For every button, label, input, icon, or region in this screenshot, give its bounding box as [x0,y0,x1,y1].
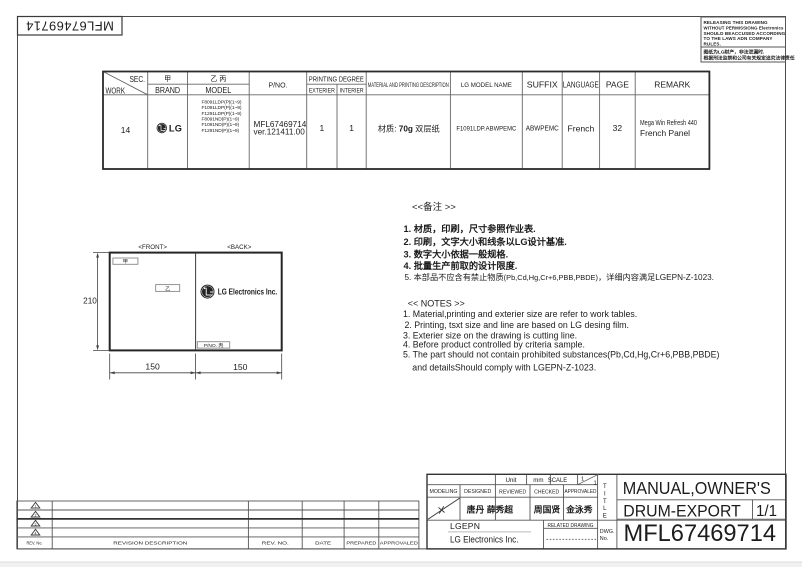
svg-text:3. 数字大小依据一般规格.: 3. 数字大小依据一般规格. [404,249,509,260]
svg-text:P/NO. 丙: P/NO. 丙 [204,343,224,349]
svg-text:REV. NO.: REV. NO. [262,541,289,546]
svg-text:LG: LG [169,123,182,133]
svg-text:LG MODEL NAME: LG MODEL NAME [461,82,513,89]
svg-text:French Panel: French Panel [640,129,690,138]
svg-text:MODEL: MODEL [205,86,231,95]
svg-text:No.: No. [600,536,608,542]
svg-text:WITHOUT PERMISSIONG Electronic: WITHOUT PERMISSIONG Electronics [704,25,784,30]
svg-text:1. Material,printing and exter: 1. Material,printing and exterier size a… [403,309,637,319]
svg-text:根据刑法监禁和公司有关规定追究法律责任: 根据刑法监禁和公司有关规定追究法律责任 [704,55,795,62]
svg-text:MANUAL,OWNER'S: MANUAL,OWNER'S [623,478,771,498]
svg-text:周国贤: 周国贤 [534,504,561,515]
svg-text:SEC.: SEC. [130,75,146,84]
svg-text:唐丹 薛秀超: 唐丹 薛秀超 [467,504,514,515]
svg-text:1: 1 [581,477,584,483]
svg-text:RULES.: RULES. [704,42,721,47]
svg-text:mm: mm [533,477,543,484]
svg-text:F1291LDP(P)(1~9): F1291LDP(P)(1~9) [202,111,242,117]
svg-text:<<备注 >>: <<备注 >> [412,201,456,213]
svg-text:DRUM-EXPORT: DRUM-EXPORT [623,501,741,520]
svg-text:REV. No.: REV. No. [27,541,43,546]
svg-text:材质: 70g 双层纸: 材质: 70g 双层纸 [378,124,440,134]
svg-text:TO THE LAWS ADN COMPANY: TO THE LAWS ADN COMPANY [704,36,773,41]
svg-text:乙 丙: 乙 丙 [210,75,226,83]
svg-text:EXTERIER: EXTERIER [309,89,336,95]
svg-text:INTERIER: INTERIER [340,89,365,95]
svg-text:WORK: WORK [106,87,126,96]
svg-text:4. Before product controlled b: 4. Before product controlled by criteria… [403,340,585,350]
svg-text:E: E [603,514,607,520]
svg-text:150: 150 [145,362,160,372]
svg-text:BRAND: BRAND [155,86,180,95]
svg-text:MATERIAL AND PRINTING DESCRIPT: MATERIAL AND PRINTING DESCRIPTION [368,83,449,89]
svg-text:2. Printing, tsxt size and li: 2. Printing, tsxt size and line are base… [405,320,629,330]
svg-text:and detailsShould comply with: and detailsShould comply with LGEPN-Z-10… [412,362,596,372]
svg-text:2: 2 [35,514,37,518]
svg-text:32: 32 [613,123,623,133]
svg-text:MFL67469714: MFL67469714 [26,18,114,33]
svg-text:MFL67469714: MFL67469714 [624,520,777,547]
svg-text:RELATED DRAWING: RELATED DRAWING [548,523,594,529]
svg-text:1/1: 1/1 [756,503,777,520]
svg-text:T: T [603,499,607,505]
svg-text:F1091LDP.ABWPEMC: F1091LDP.ABWPEMC [456,126,516,133]
svg-text:乙: 乙 [165,285,170,292]
svg-text:F1291ND(P)(1~9): F1291ND(P)(1~9) [202,128,240,134]
svg-text:Unit: Unit [505,477,516,484]
svg-text:<< NOTES >>: << NOTES >> [408,298,465,308]
svg-text:APPROVALED: APPROVALED [380,541,419,546]
svg-text:ver.121411.00: ver.121411.00 [254,128,306,137]
svg-text:Mega Win Refresh 440: Mega Win Refresh 440 [640,118,697,127]
svg-text:3: 3 [35,523,37,527]
svg-text:1: 1 [349,123,354,133]
svg-text:图纸为LG财产，非法泄漏时.: 图纸为LG财产，非法泄漏时. [704,49,765,56]
svg-text:DATE: DATE [315,541,331,546]
svg-text:<BACK>: <BACK> [227,244,251,251]
svg-text:1: 1 [319,123,324,133]
svg-text:150: 150 [233,362,248,372]
svg-text:CHECKED: CHECKED [534,490,559,496]
svg-text:5. 本部品不应含有禁止物质(Pb,Cd,Hg,Cr+6,: 5. 本部品不应含有禁止物质(Pb,Cd,Hg,Cr+6,PBB,PBDE)，详… [405,272,714,282]
svg-text:DWG.: DWG. [600,529,615,535]
svg-text:APPROVALED: APPROVALED [565,489,597,495]
svg-text:5. The part should not contain: 5. The part should not contain prohibite… [403,350,720,360]
svg-text:SUFFIX: SUFFIX [527,80,558,90]
svg-text:MODELING: MODELING [430,489,458,495]
svg-text:金泳秀: 金泳秀 [565,504,593,515]
svg-text:F8091LDP(P)(1~9): F8091LDP(P)(1~9) [202,99,242,105]
svg-text:1: 1 [35,505,37,509]
svg-text:DESIGNED: DESIGNED [464,489,491,495]
svg-text:LG Electronics Inc.: LG Electronics Inc. [218,288,278,297]
svg-text:1: 1 [594,480,597,486]
svg-text:LG Electronics Inc.: LG Electronics Inc. [450,534,519,544]
svg-text:REMARK: REMARK [654,80,690,90]
svg-text:SCALE: SCALE [548,477,568,484]
svg-text:4: 4 [35,532,37,536]
svg-text:LANGUAGE: LANGUAGE [563,80,599,90]
svg-text:14: 14 [121,125,131,135]
svg-text:F1091ND(P)(1~9): F1091ND(P)(1~9) [202,122,240,128]
svg-text:P/NO.: P/NO. [268,81,287,90]
svg-text:REVIEWED: REVIEWED [499,490,526,496]
svg-text:甲: 甲 [123,258,128,265]
svg-text:ABWPEMC: ABWPEMC [526,126,559,133]
svg-text:1. 材质，印刷，尺寸参照作业表.: 1. 材质，印刷，尺寸参照作业表. [404,223,536,234]
svg-text:甲: 甲 [164,75,171,83]
svg-text:2. 印刷，文字大小和线条以LG设计基准.: 2. 印刷，文字大小和线条以LG设计基准. [404,236,567,247]
svg-text:REVISION DESCRIPTION: REVISION DESCRIPTION [113,541,187,546]
svg-text:<FRONT>: <FRONT> [138,244,167,251]
svg-text:F1091LDP(P)(1~9): F1091LDP(P)(1~9) [202,105,242,111]
svg-text:T: T [603,484,607,490]
svg-text:PAGE: PAGE [606,80,629,90]
svg-text:F8091ND(P)(1~9): F8091ND(P)(1~9) [202,117,240,123]
svg-text:4. 批量生产前取的设计限度.: 4. 批量生产前取的设计限度. [404,260,518,271]
svg-text:French: French [568,124,595,134]
svg-text:PREPARED: PREPARED [346,541,377,546]
svg-text:PRINTING DEGREE: PRINTING DEGREE [309,75,364,84]
svg-text:RELEASING THIS DRAWING: RELEASING THIS DRAWING [704,20,769,25]
svg-text:SHOULD BEACCUSED ACCORDING: SHOULD BEACCUSED ACCORDING [704,31,786,36]
svg-text:LGEPN: LGEPN [450,521,480,531]
svg-text:210: 210 [83,297,97,306]
